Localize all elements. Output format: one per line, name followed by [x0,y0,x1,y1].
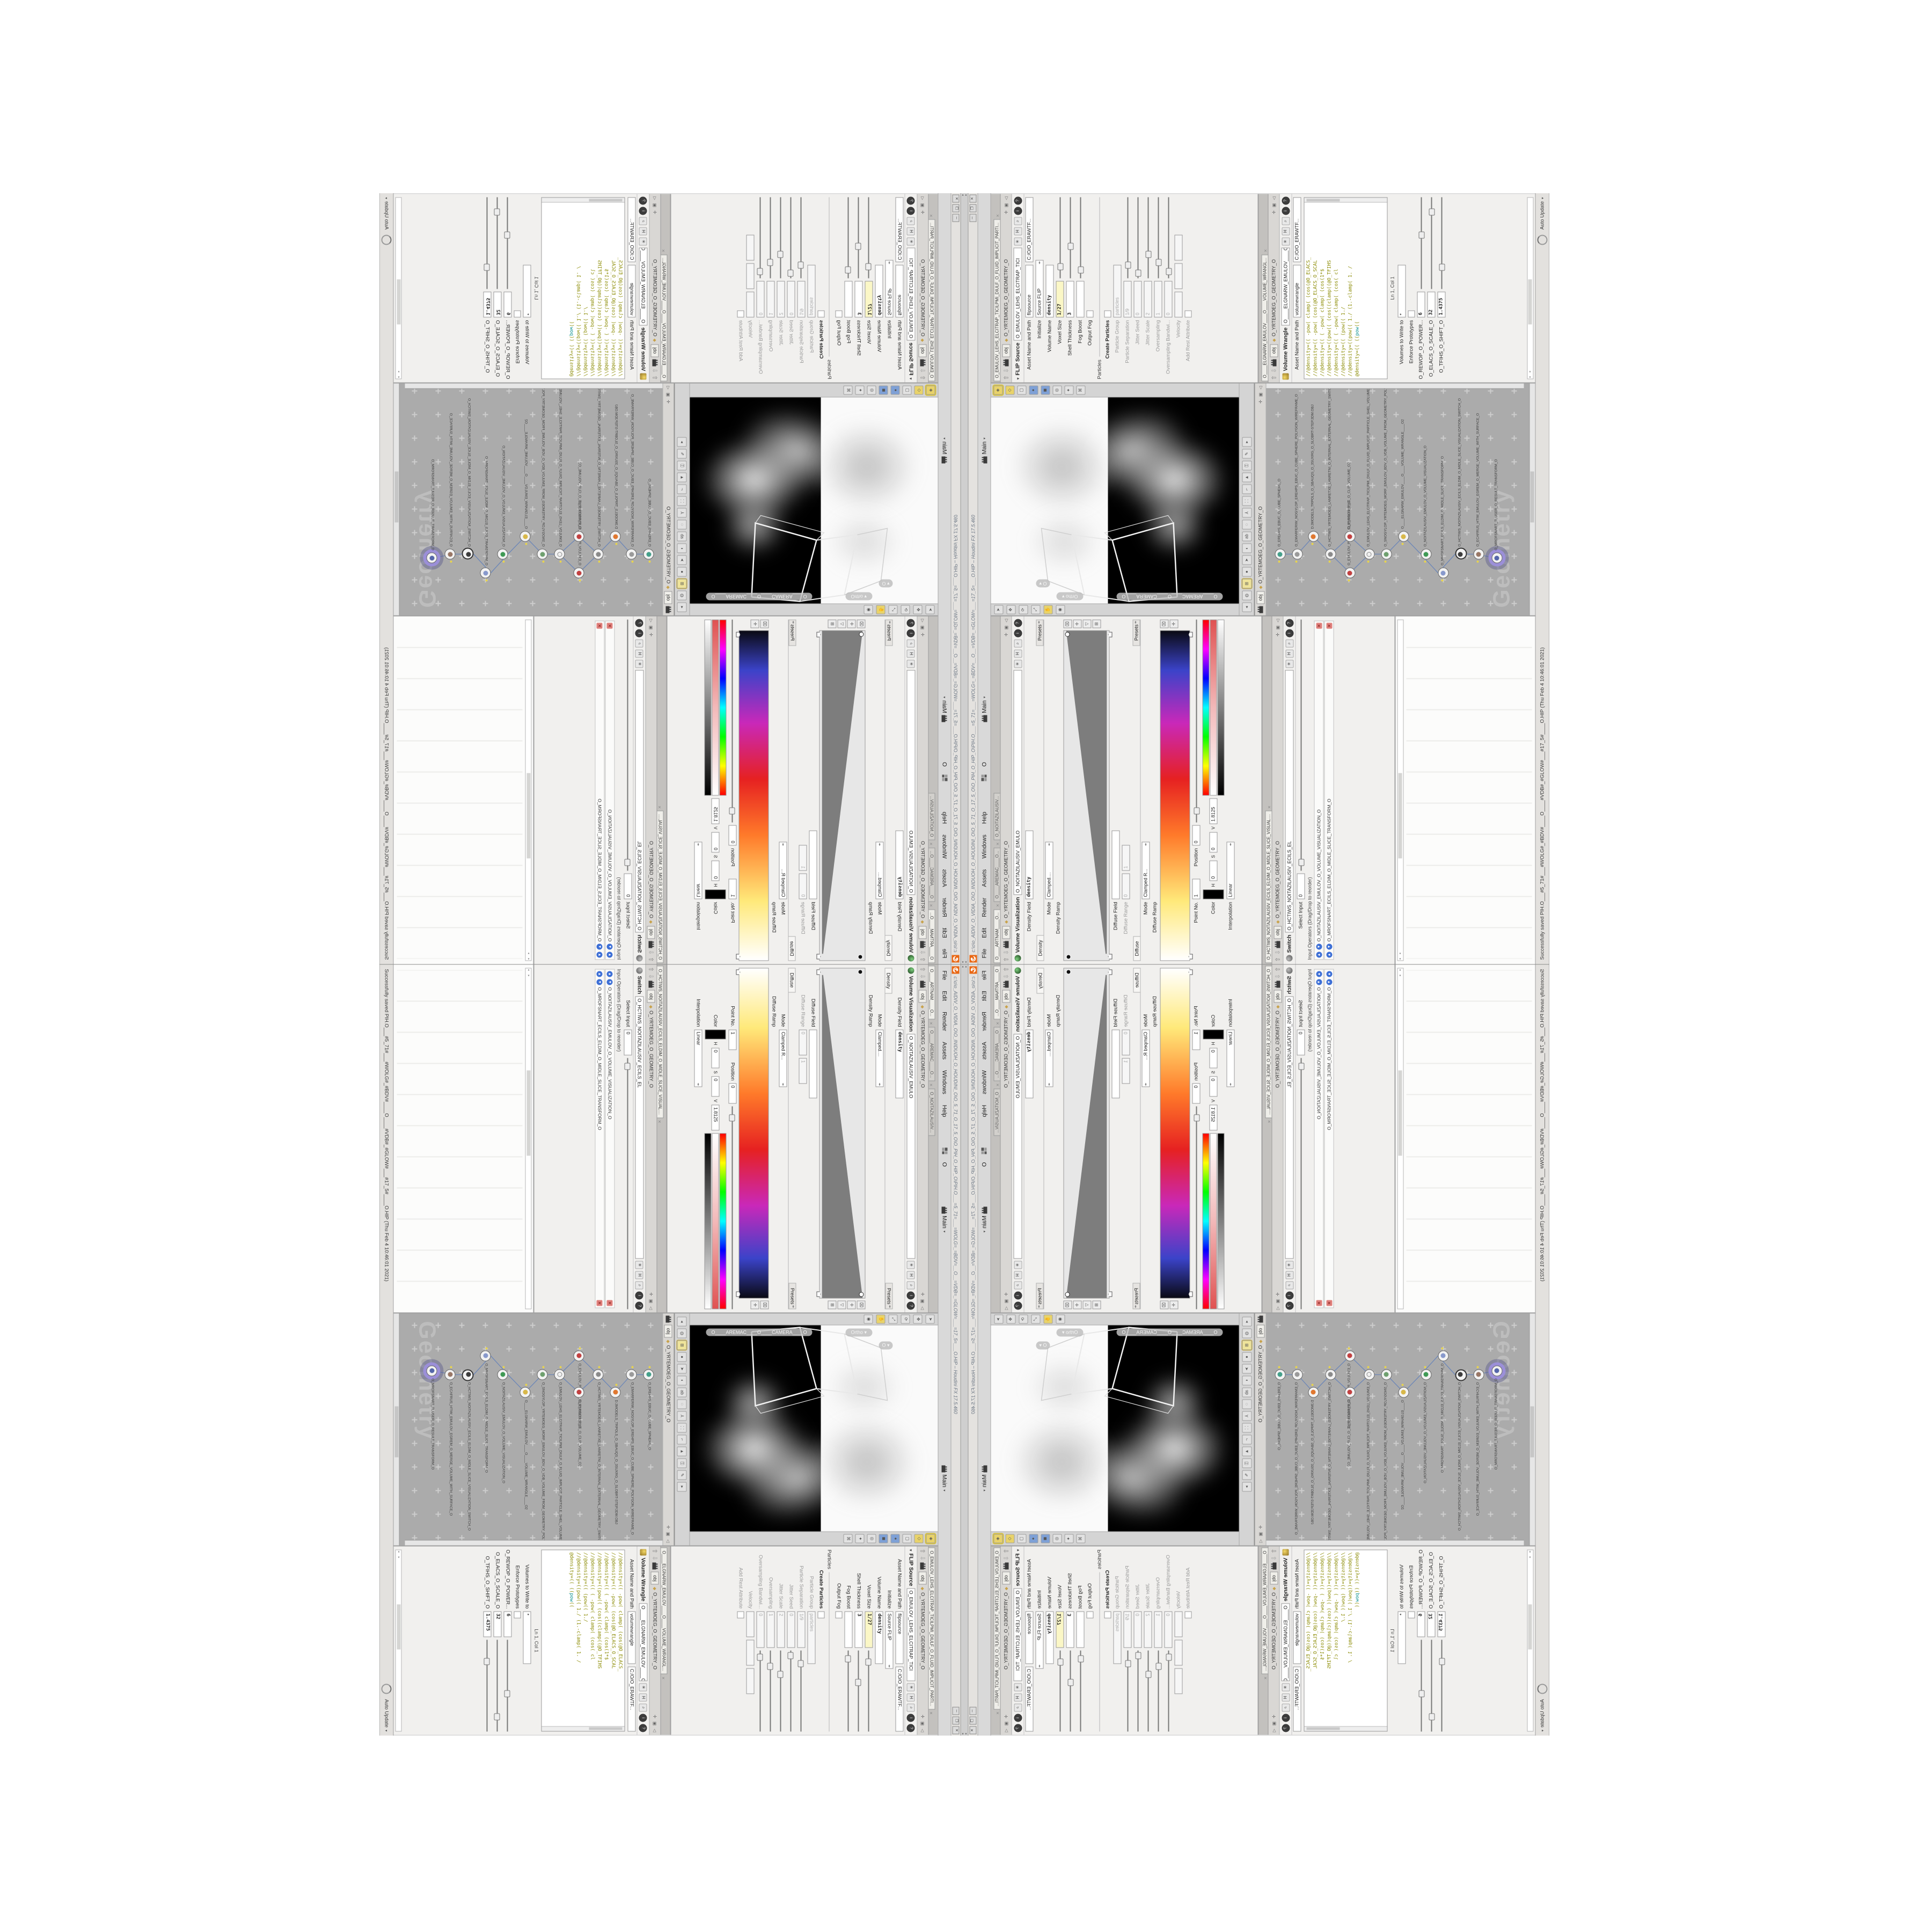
density-ramp-widget[interactable]: ⌧ ✛ ▽ ⊞ [818,617,866,964]
val-value[interactable]: 1.8125 [711,1104,719,1130]
edge-left-arrow-icon[interactable]: ◂ [961,965,964,967]
hscript-icon[interactable]: H [635,650,643,658]
node-name-field[interactable]: O____ELGNARW_EMULOV____O [639,1603,647,1681]
search-icon[interactable]: ⌕ [635,640,643,648]
collapse-pane-icon[interactable]: ◁ [1272,1728,1277,1732]
auto-update-selector[interactable]: Auto Update▾ [1540,1699,1546,1731]
power-value[interactable]: 6 [503,1611,511,1637]
minimize-button[interactable]: ─ [970,214,977,222]
remove-input-icon[interactable]: ✕ [1327,1300,1333,1306]
pin-icon[interactable]: ✛ [653,210,657,215]
expand-arrow-icon[interactable]: ▾ [909,1549,913,1551]
node-flip-source[interactable]: O_EMULOV_LEHS_ELCITRAP_TICILPMI_DIULF_O_… [554,1369,565,1380]
maximize-pane-icon[interactable]: ▣ [1276,1298,1280,1304]
voxel-size-slider[interactable] [1057,1650,1064,1731]
node-volume-visualization[interactable]: O_NOITAZILAUSIV_EMULOV_O_VOLUME_VISUALIZ… [497,1369,508,1380]
oversampling-value[interactable]: 1 [1154,281,1162,318]
pane-tab-visualization[interactable]: O_NOITAZILAUSIV... [928,1088,935,1136]
vex-code-editor[interactable]: //@density=(( -pow( clamp( (cos(@O_ELACS… [1304,1549,1388,1731]
obj-chip[interactable]: obj [664,1324,672,1337]
hscript-icon[interactable]: H [639,1693,647,1701]
obj-chip[interactable]: obj [647,926,655,939]
volume-name-value[interactable]: density [1046,265,1054,318]
search-icon[interactable]: ⌕ [907,217,915,225]
gear-icon[interactable]: ✳ [907,238,915,246]
mask-icon[interactable]: ◐ [1242,1375,1252,1385]
view-mini-pill[interactable]: O ▾ [879,580,892,588]
ramp-delete-point-icon[interactable]: ⌧ [1064,1300,1072,1309]
help-icon[interactable]: ? [907,619,915,627]
node-switch-geometry[interactable]: O_HCTIWS_YRTEMOEG_LANRETXE_LANRETNI_O_IN… [592,1369,603,1380]
add-rest-checkbox[interactable] [737,311,744,318]
shaded-box-icon[interactable]: ◼ [879,1534,888,1543]
breadcrumb[interactable]: O_YRTEMOEG_O_GEOMETRY_O [652,1592,657,1712]
power-slider[interactable] [1418,1640,1425,1731]
obj-chip[interactable]: obj [919,1571,927,1584]
tab-close-icon[interactable]: ✕ [657,1119,661,1124]
diffuse-ramp-area[interactable] [738,631,769,961]
close-button[interactable]: ✕ [970,1726,977,1734]
ramp-position-marker[interactable] [1189,632,1193,638]
obj-chip[interactable]: obj [664,591,672,604]
menu-render[interactable]: Render [980,896,989,919]
shaded-sphere-icon[interactable]: ● [890,386,899,395]
maximize-pane-icon[interactable]: ▣ [649,1298,654,1304]
initialize-dropdown[interactable]: Source FLIP [885,260,893,318]
tab-close-icon[interactable]: ✕ [996,903,1000,909]
pin-icon[interactable]: ✛ [1258,1525,1263,1529]
pin-icon[interactable]: ✛ [666,400,671,405]
dashed-circle-icon[interactable]: ◌ [1242,520,1252,530]
auto-update-selector[interactable]: Auto Update▾ [383,1699,389,1731]
pane-tab-flip-source[interactable]: O_EMULOV_LEHS_ELCITRAP_TICILPMI_DIULF_O_… [928,219,935,382]
voxel-size-slider[interactable] [1057,197,1064,279]
ramp-delete-point-icon[interactable]: ⌧ [760,1300,769,1309]
volume-name-value[interactable]: density [875,1611,883,1664]
tab-close-icon[interactable]: ✕ [996,1082,1000,1087]
select-input-value[interactable]: 0 [624,874,632,899]
velocity-x[interactable] [746,292,754,318]
folder-tab-diffuse[interactable]: Diffuse [788,968,795,992]
remove-input-icon[interactable]: ✕ [597,1300,603,1306]
hue-strip[interactable] [1203,1133,1210,1309]
value-strip[interactable] [704,1133,711,1309]
pane-type-icon[interactable] [1271,1562,1277,1569]
oversampling-slider[interactable] [767,197,774,279]
pane-h-scrollbar[interactable] [1527,197,1534,379]
breadcrumb[interactable]: O_YRTEMOEG_O_GEOMETRY_O [665,406,671,583]
desktop-selector-2[interactable]: Main▾ [941,1465,948,1491]
reorder-up-icon[interactable]: ▲ [597,952,603,958]
node-volume-visualization[interactable]: O_NOITAZILAUSIV_EMULOV_O_VOLUME_VISUALIZ… [1421,1369,1432,1380]
ramp-delete-point-icon[interactable]: ⌧ [760,620,769,628]
pointer-box-icon[interactable]: ➤ [1242,1364,1252,1373]
scale-tool-icon[interactable]: ⤢ [1031,605,1041,614]
tab-close-icon[interactable]: ✕ [928,903,933,909]
fog-boost-value[interactable] [844,281,852,318]
pen-icon[interactable]: ✎ [677,1470,687,1480]
node-name-field[interactable]: O_HCTIWS_NOITAZILAUSIV_ECILS_EL [1285,996,1294,1258]
vex-code-editor[interactable]: //@density=(( -pow( clamp( (cos(@O_ELACS… [541,197,625,379]
obj-chip[interactable]: obj [1274,926,1282,939]
enforce-prototypes-checkbox[interactable] [1408,311,1415,318]
node-switch-geometry[interactable]: O_HCTIWS_YRTEMOEG_LANRETXE_LANRETNI_O_IN… [592,549,603,560]
next-arrow-icon[interactable]: ▸ [1242,437,1252,447]
volume-name-value[interactable]: density [1046,1611,1054,1664]
pane-type-icon[interactable] [920,360,925,367]
dashed-circle-icon[interactable]: ◌ [677,520,687,530]
position-value[interactable]: 0 [1192,825,1201,846]
code-v-scrollbar[interactable] [541,1726,624,1731]
node-clip-2[interactable]: O_EMULOV_PILC_O_CLIP_VOLUME_O2 [1345,531,1356,542]
node-name-field[interactable]: O_NOITAZILAUSIV_EMULO [906,670,915,895]
velocity-z[interactable] [746,1668,754,1694]
snap-point-icon[interactable]: ◇ [1006,386,1015,395]
pane-tab-switch[interactable]: O_HCTIWS_NOITAZILAUSIV_ECILS_ELDIM_O_MID… [1265,811,1272,964]
desktop-selector-2[interactable]: Main▾ [941,438,948,464]
prev-arrow-icon[interactable]: ◂ [1242,1316,1252,1326]
pane-tab-camera[interactable]: O____AREMAC____O... [994,848,1000,902]
node-clip-2[interactable]: O_EMULOV_PILC_O_CLIP_VOLUME_O2 [573,531,584,542]
lights-icon[interactable]: ✦ [1065,386,1074,395]
dark-circle-icon[interactable]: ● [1242,1352,1252,1362]
expand-arrow-icon[interactable]: ▾ [909,378,913,380]
breadcrumb[interactable]: O_YRTEMOEG_O_GEOMETRY_O [1275,1011,1280,1290]
mask-icon[interactable]: ◐ [677,1375,687,1385]
target-icon[interactable]: ◎ [1053,386,1062,395]
point-no-value[interactable]: 1 [728,1029,736,1050]
node-transform-slice[interactable]: O_MROFSNART_ECILS_ELDIM_O_MIDLE_SLICE_TR… [1438,568,1449,579]
menu-help[interactable]: Help [980,1103,989,1118]
node-name-field[interactable]: O_EMULOV_LEHS_ELCITRAP_TICI [1014,248,1022,341]
reorder-down-icon[interactable]: ▼ [1327,944,1333,950]
input-operator-row[interactable]: ▲▼ O_MROFSNART_ECILS_ELDIM_O_MIDLE_SLICE… [595,621,604,960]
particle-separation-value[interactable]: 1/9 [797,1611,805,1648]
layout-quad-icon[interactable]: ⊞ [1242,579,1252,589]
info-icon[interactable]: i [1014,1714,1022,1722]
fog-boost-slider[interactable] [845,197,852,279]
velocity-y[interactable] [746,264,754,289]
pane-tab-volume-wrangle[interactable]: O____ELGNARW_EMULOV____O____VOLUME_WRANG… [661,255,667,382]
presets-button[interactable]: Presets [1133,1283,1140,1309]
velocity-x[interactable] [746,1611,754,1637]
help-icon[interactable]: ? [635,1301,643,1309]
globe-icon[interactable]: ◍ [1242,1328,1252,1338]
node-name-field[interactable]: O_HCTIWS_NOITAZILAUSIV_ECILS_EL [635,996,643,1258]
reorder-up-icon[interactable]: ▲ [1316,952,1322,958]
details-h-scrollbar[interactable] [1397,968,1404,1309]
maximize-pane-icon[interactable]: ▣ [1258,392,1263,398]
sat-value[interactable]: 0 [711,832,719,853]
value-strip[interactable] [1218,620,1225,796]
help-icon[interactable]: ? [1014,197,1022,205]
tripod-icon[interactable]: ⅄ [1242,1411,1252,1421]
pane-tab-switch[interactable]: O_HCTIWS_NOITAZILAUSIV_ECILS_ELDIM_O_MID… [657,965,663,1118]
nav-down-arrow-icon[interactable]: ⇩ [648,974,655,978]
fog-boost-slider[interactable] [1078,1650,1084,1731]
pane-tab-mantra[interactable]: O____ARTNAM____O... [928,910,935,963]
desktop-selector[interactable]: Main▾ [982,697,988,722]
initialize-dropdown[interactable]: Source FLIP [1036,260,1044,318]
node-switch-geometry[interactable]: O_HCTIWS_YRTEMOEG_LANRETXE_LANRETNI_O_IN… [1326,1369,1336,1380]
enforce-prototypes-checkbox[interactable] [514,1611,521,1618]
node-name-field[interactable]: O_NOITAZILAUSIV_EMULO [906,1034,915,1258]
search-icon[interactable]: ⌕ [1014,217,1022,225]
ramp-position-marker[interactable] [1189,1291,1193,1297]
node-polywire[interactable]: O_EMARFERIW_NOGYLOP_EREHPS_EBUC_O_CUBE_S… [626,549,636,560]
density-ramp-area[interactable] [819,968,865,1298]
nav-down-arrow-icon[interactable]: ⇩ [1271,1555,1278,1560]
breadcrumb[interactable]: O_YRTEMOEG_O_GEOMETRY_O [1258,406,1263,583]
help-icon[interactable]: ? [639,197,647,205]
pen-icon[interactable]: ✎ [677,449,687,459]
camera-menu-pill[interactable]: O____AREMAC____O____CAMERA____O [706,1328,812,1336]
hscript-icon[interactable]: H [635,1271,643,1279]
info-icon[interactable]: i [907,630,915,638]
help-icon[interactable]: ? [907,1301,915,1309]
breadcrumb[interactable]: O_YRTEMOEG_O_GEOMETRY_O [1004,1592,1009,1712]
gear-icon[interactable]: ✳ [1282,238,1290,246]
search-icon[interactable]: ⌕ [907,1281,915,1289]
val-value[interactable]: 1.8125 [1210,1104,1218,1130]
ramp-position-marker[interactable] [1189,969,1193,975]
obj-chip[interactable]: obj [1002,926,1011,939]
expand-arrow-icon[interactable]: ▾ [1016,378,1021,380]
menu-help[interactable]: Help [980,810,989,826]
presets-button[interactable]: Presets [885,1283,892,1309]
initialize-dropdown[interactable]: Source FLIP [1036,1611,1044,1668]
select-input-slider[interactable] [1298,620,1305,871]
pane-tab-switch[interactable]: O_HCTIWS_NOITAZILAUSIV_ECILS_ELDIM_O_MID… [657,811,663,964]
maximize-pane-icon[interactable]: ▣ [1004,625,1009,631]
jitter-scale-slider[interactable] [778,197,784,279]
nav-down-arrow-icon[interactable]: ⇩ [1003,974,1010,978]
position-value[interactable]: 0 [728,1083,736,1103]
oversampling-bandwidth-slider[interactable] [1166,197,1172,279]
network-editor[interactable]: obj ◆ O_YRTEMOEG_O_GEOMETRY_O ✛▣◁ [1255,1313,1535,1545]
create-particles-checkbox[interactable] [1104,1611,1111,1618]
node-volume-wrangle[interactable]: O____ELGNARW_EMULOV____O____VOLUME_WRANG… [1399,1387,1409,1397]
search-icon[interactable]: ⌕ [1014,640,1022,648]
cone-icon[interactable]: ▲ [677,473,687,482]
obj-chip[interactable]: obj [651,345,659,357]
maximize-pane-icon[interactable]: ▣ [1004,203,1009,208]
pin-icon[interactable]: ✛ [1276,1292,1280,1297]
menu-help[interactable]: Help [940,1103,949,1118]
value-strip[interactable] [1218,1133,1225,1309]
node-vdb-from-polygons[interactable]: O_SNOGYLOP_YRTEMOEG_MORF_EMULOV_BDV_O_VD… [1381,549,1392,560]
node-volume-wrangle[interactable]: O____ELGNARW_EMULOV____O____VOLUME_WRANG… [1399,531,1409,542]
tab-close-icon[interactable]: ✕ [996,841,1000,847]
menu-windows[interactable]: Windows [940,833,949,861]
dashed-circle-icon[interactable]: ◌ [677,1399,687,1409]
interpolation-dropdown[interactable]: Linear [694,1029,702,1087]
select-tool-icon[interactable]: ➤ [925,1314,934,1323]
pane-type-icon[interactable] [920,941,925,948]
ramp-add-point-icon[interactable]: ✛ [750,620,759,628]
remove-input-icon[interactable]: ✕ [1327,623,1333,629]
details-h-scrollbar[interactable] [1397,620,1404,961]
help-icon[interactable]: ? [1282,1724,1290,1732]
point-no-value[interactable]: 1 [1192,879,1201,899]
gear-icon[interactable]: ✳ [1286,660,1294,668]
pin-icon[interactable]: ✛ [649,1292,654,1297]
select-tool-icon[interactable]: ➤ [994,605,1004,614]
layout-quad-icon[interactable]: ⊞ [1242,1340,1252,1350]
value-strip[interactable] [704,620,711,796]
node-cubesphere[interactable]: O_EREHPS_EBUC_O_CUBE_SPHERE_O [643,1369,654,1380]
shift-value[interactable]: 1.4375 [1438,1611,1446,1637]
breadcrumb[interactable]: O_YRTEMOEG_O_GEOMETRY_O [1004,1011,1009,1290]
select-input-slider[interactable] [625,1058,631,1309]
snap-tool-icon[interactable]: ◉ [863,1314,873,1323]
asset-node-name[interactable]: volumewrangle [1293,1611,1301,1664]
snap-tool-icon[interactable]: ◉ [863,605,873,614]
input-operator-row[interactable]: ▲▼ O_MROFSNART_ECILS_ELDIM_O_MIDLE_SLICE… [1324,621,1334,960]
shell-thickness-slider[interactable] [1067,1650,1074,1731]
color-swatch[interactable] [1203,890,1224,899]
breadcrumb[interactable]: O_YRTEMOEG_O_GEOMETRY_O [920,639,925,918]
val-value[interactable]: 1.8125 [711,799,719,824]
pane-tab-mantra[interactable]: O____ARTNAM____O... [994,965,1000,1019]
saturation-strip[interactable] [712,620,719,796]
node-flip-source[interactable]: O_EMULOV_LEHS_ELCITRAP_TICILPMI_DIULF_O_… [1364,1369,1375,1380]
oversampling-bandwidth-value[interactable]: 0 [1165,281,1173,318]
collapse-pane-icon[interactable]: ◁ [920,196,925,201]
select-tool-icon[interactable]: ➤ [994,1314,1004,1323]
wire-shade-icon[interactable]: ▢ [902,1534,911,1543]
remove-input-icon[interactable]: ✕ [597,623,603,629]
reorder-up-icon[interactable]: ▲ [1316,971,1322,977]
collapse-pane-icon[interactable]: ◁ [649,619,654,623]
collapse-pane-icon[interactable]: ◁ [1004,1306,1009,1310]
maximize-pane-icon[interactable]: ▣ [1272,203,1277,208]
hscript-icon[interactable]: H [907,1271,915,1279]
tab-close-icon[interactable]: ✕ [928,214,933,219]
auto-update-selector[interactable]: Auto Update▾ [1540,197,1546,230]
asset-path[interactable]: C:/O/O_ERAWTF... [627,1666,635,1731]
move-tool-icon[interactable]: ✥ [1007,1314,1016,1323]
select-input-value[interactable]: 0 [624,1029,632,1055]
hook-icon[interactable]: ⌐ [1242,485,1252,494]
details-h-scrollbar[interactable] [525,968,531,1309]
view-mini-pill[interactable]: O ▾ [879,1341,892,1349]
pin-icon[interactable]: ✛ [920,1714,925,1719]
globe-icon[interactable]: ◍ [677,591,687,601]
nav-up-arrow-icon[interactable]: ⇧ [1003,967,1010,971]
node-name-field[interactable]: O____ELGNARW_EMULOV____O [639,248,647,326]
oversampling-bandwidth-slider[interactable] [757,1650,764,1731]
node-file[interactable]: D.3MODELS_TRPOLS_O_SBAUQS_O_3SUXRG_O_SLO… [610,1387,620,1397]
collapse-pane-icon[interactable]: ◁ [1004,1728,1009,1732]
nav-down-arrow-icon[interactable]: ⇩ [1271,369,1278,374]
handles-tool-icon[interactable]: ✋ [1044,1314,1053,1323]
hscript-icon[interactable]: H [1286,650,1294,658]
jitter-scale-value[interactable]: 2 [777,281,785,318]
ortho-pill[interactable]: Ortho ▾ [845,592,872,601]
ramp-position-marker[interactable] [736,954,740,960]
nav-down-arrow-icon[interactable]: ⇩ [919,1555,926,1560]
oversampling-value[interactable]: 1 [766,281,774,318]
node-name-field[interactable]: O_EMULOV_LEHS_ELCITRAP_TICI [1014,1588,1022,1681]
shell-thickness-slider[interactable] [1067,197,1074,279]
color-swatch[interactable] [705,1029,726,1039]
mode-dropdown[interactable]: Clamped.... [875,842,883,899]
maximize-pane-icon[interactable]: ▣ [1276,625,1280,631]
network-canvas[interactable]: Geometry O_EREHPS_EBUC_O_CUBE_SPHERE_O O… [399,384,662,616]
shell-thickness-value[interactable]: 3 [1066,1611,1074,1648]
remove-input-icon[interactable]: ✕ [1316,1300,1322,1306]
maximize-pane-icon[interactable]: ▣ [649,625,654,631]
add-rest-checkbox[interactable] [737,1611,744,1618]
density-ramp-widget[interactable]: ⌧ ✛ ▽ ⊞ [1063,964,1111,1312]
abc-icon[interactable]: ab [677,532,687,541]
prev-arrow-icon[interactable]: ◂ [677,1316,687,1326]
folder-tab-density[interactable]: Density [885,935,892,961]
node-merge[interactable]: O_ECAFRUS_HTIW_EMULOV_EGREM_O_MERGE_VOLU… [444,1369,455,1380]
tab-close-icon[interactable]: ✕ [1268,805,1272,810]
ramp-delete-point-icon[interactable]: ⌧ [1160,1300,1169,1309]
remove-input-icon[interactable]: ✕ [607,1300,613,1306]
diffuse-ramp-area[interactable] [738,968,769,1298]
shift-slider[interactable] [484,197,491,289]
hscript-icon[interactable]: H [907,650,915,658]
nav-down-arrow-icon[interactable]: ⇩ [648,950,655,955]
collapse-pane-icon[interactable]: ◁ [1272,196,1277,201]
point-no-value[interactable]: 1 [1192,1029,1201,1050]
velocity-x[interactable] [1175,1611,1183,1637]
rotate-tool-icon[interactable]: ⟳ [901,605,910,614]
info-icon[interactable]: i [907,207,915,215]
node-result-transform-selected[interactable]: O_MROFSNART_TLUSER_O_RESULT_TRANSFORM_O [426,553,437,563]
pin-icon[interactable]: ✛ [1276,633,1280,638]
jitter-scale-value[interactable]: 2 [777,1611,785,1648]
info-icon[interactable]: i [1282,207,1290,215]
hook-icon[interactable]: ⌐ [677,1435,687,1444]
power-value[interactable]: 6 [1417,1611,1425,1637]
shift-value[interactable]: 1.4375 [1438,292,1446,318]
pane-tab-mantra[interactable]: O____ARTNAM____O... [994,910,1000,963]
handles-tool-icon[interactable]: ✋ [876,605,885,614]
shift-slider[interactable] [484,1640,491,1731]
search-icon[interactable]: ⌕ [639,1703,647,1711]
output-fog-checkbox[interactable] [835,1611,842,1618]
diffuse-range-max[interactable]: 1 [1122,1058,1130,1084]
hscript-icon[interactable]: H [907,228,915,236]
presets-button[interactable]: Presets [885,620,892,646]
corner-points-icon[interactable]: ⸬ [677,496,687,506]
density-ramp-area[interactable] [819,631,865,961]
node-switch-geometry[interactable]: O_HCTIWS_YRTEMOEG_LANRETXE_LANRETNI_O_IN… [1326,549,1336,560]
oversampling-bandwidth-value[interactable]: 0 [756,281,764,318]
target-icon[interactable]: ◎ [867,386,876,395]
camera-lock-icon[interactable]: ⌘ [1077,386,1086,395]
rotate-tool-icon[interactable]: ⟳ [1019,605,1028,614]
camera-lock-icon[interactable]: ⌘ [843,1534,852,1543]
diffuse-ramp-widget[interactable]: ⌧ ✛ [737,964,770,1312]
nav-down-arrow-icon[interactable]: ⇩ [1003,1555,1010,1560]
reorder-down-icon[interactable]: ▼ [607,944,613,950]
node-file[interactable]: D.3MODELS_TRPOLS_O_SBAUQS_O_3SUXRG_O_SLO… [610,531,620,542]
code-v-scrollbar[interactable] [1305,198,1387,203]
tab-close-icon[interactable]: ✕ [661,1675,665,1680]
menu-render[interactable]: Render [940,896,949,919]
oversampling-slider[interactable] [767,1650,774,1731]
help-icon[interactable]: ? [1014,1301,1022,1309]
ramp-flip-icon[interactable]: ▽ [1083,620,1092,628]
menu-windows[interactable]: Windows [980,1069,989,1096]
search-icon[interactable]: ⌕ [1282,1703,1290,1711]
